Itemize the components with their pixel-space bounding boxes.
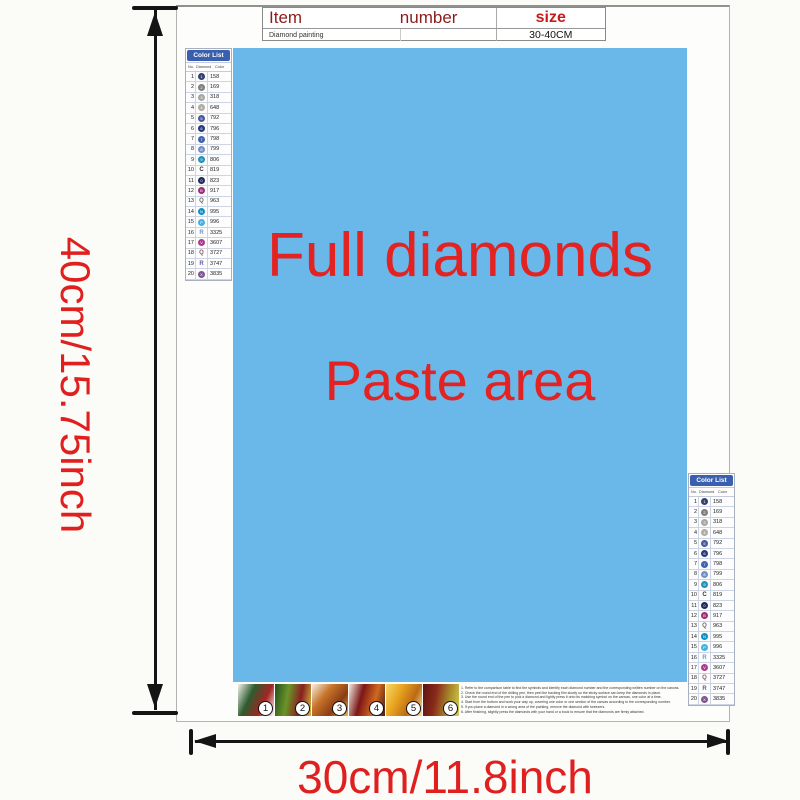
row-number: 13 xyxy=(186,197,196,206)
row-number: 17 xyxy=(186,238,196,247)
col-header-diamond: Diamond xyxy=(699,490,711,494)
row-number: 14 xyxy=(689,632,699,641)
step-number-badge: 5 xyxy=(406,701,421,716)
color-list-row: 10C819 xyxy=(689,591,734,601)
diamond-symbol: R xyxy=(699,653,711,662)
color-code: 819 xyxy=(711,591,734,600)
col-header-diamond: Diamond xyxy=(196,65,208,69)
color-list-row: 17V3607 xyxy=(689,663,734,673)
diamond-symbol: N xyxy=(196,207,208,216)
color-code: 158 xyxy=(711,497,734,506)
diamond-dot-icon: B xyxy=(701,612,708,619)
diamond-symbol: C xyxy=(699,591,711,600)
col-header-color: Color xyxy=(711,490,734,494)
color-code: 917 xyxy=(711,611,734,620)
diamond-letter-symbol: Q xyxy=(199,198,204,204)
col-header-no: No. xyxy=(186,65,196,69)
step-image: 1 xyxy=(238,684,274,716)
color-list-rows: 1115822169333184464855792667967779888799… xyxy=(689,497,734,705)
diamond-dot-icon: 0 xyxy=(701,602,708,609)
color-list-row: 11158 xyxy=(186,72,231,82)
diamond-letter-symbol: R xyxy=(199,230,203,236)
diamond-symbol: P xyxy=(699,642,711,651)
diamond-dot-icon: 6 xyxy=(198,125,205,132)
diamond-letter-symbol: Q xyxy=(199,250,204,256)
color-list-row: 77798 xyxy=(689,559,734,569)
color-list-row: 17V3607 xyxy=(186,238,231,248)
color-list-row: 12B917 xyxy=(186,186,231,196)
diamond-dot-icon: 5 xyxy=(701,540,708,547)
diamond-dot-icon: 1 xyxy=(198,73,205,80)
diamond-symbol: C xyxy=(196,166,208,175)
diamond-symbol: B xyxy=(699,611,711,620)
horizontal-arrow-right-cap xyxy=(726,729,730,755)
diamond-dot-icon: 4 xyxy=(198,104,205,111)
diamond-symbol: X xyxy=(699,694,711,703)
diamond-dot-icon: 4 xyxy=(701,529,708,536)
diamond-dot-icon: 7 xyxy=(701,561,708,568)
row-number: 14 xyxy=(186,207,196,216)
diamond-letter-symbol: Q xyxy=(702,675,707,681)
row-number: 20 xyxy=(186,269,196,278)
row-number: 16 xyxy=(186,228,196,237)
diamond-letter-symbol: C xyxy=(702,592,706,598)
row-number: 2 xyxy=(186,82,196,91)
color-code: 318 xyxy=(208,93,231,102)
color-code: 798 xyxy=(711,559,734,568)
color-code: 3727 xyxy=(711,674,734,683)
color-list-row: 14N995 xyxy=(186,207,231,217)
diamond-dot-icon: 1 xyxy=(701,498,708,505)
color-list-row: 14N995 xyxy=(689,632,734,642)
color-code: 648 xyxy=(208,103,231,112)
color-list-left: Color List No. Diamond Color 11158221693… xyxy=(185,48,232,281)
color-list-column-headers: No. Diamond Color xyxy=(689,487,734,497)
item-value: Diamond painting xyxy=(263,32,400,39)
diamond-letter-symbol: R xyxy=(199,261,203,267)
color-list-row: 16R3325 xyxy=(689,653,734,663)
number-value xyxy=(400,29,496,41)
diamond-dot-icon: X xyxy=(198,271,205,278)
diamond-letter-symbol: Q xyxy=(702,623,707,629)
color-list-row: 22169 xyxy=(186,82,231,92)
color-code: 3747 xyxy=(208,259,231,268)
color-code: 796 xyxy=(711,549,734,558)
color-list-row: 15P996 xyxy=(689,642,734,652)
instruction-line: 6. After finishing, slightly press the d… xyxy=(461,710,698,715)
item-size-table: Item number size Diamond painting 30-40C… xyxy=(262,7,606,41)
color-code: 963 xyxy=(208,197,231,206)
diamond-dot-icon: 6 xyxy=(701,550,708,557)
diamond-symbol: Q xyxy=(196,249,208,258)
height-dimension-label: 40cm/15.75inch xyxy=(51,237,99,534)
color-code: 3325 xyxy=(711,653,734,662)
diamond-symbol: 3 xyxy=(196,93,208,102)
diamond-dot-icon: 8 xyxy=(198,146,205,153)
row-number: 8 xyxy=(186,145,196,154)
item-table-header-row: Item number size xyxy=(263,8,605,29)
row-number: 10 xyxy=(689,591,699,600)
color-list-row: 88799 xyxy=(186,145,231,155)
row-number: 6 xyxy=(689,549,699,558)
color-code: 3747 xyxy=(711,684,734,693)
diamond-dot-icon: 3 xyxy=(701,519,708,526)
diamond-symbol: 5 xyxy=(196,114,208,123)
diamond-symbol: 8 xyxy=(196,145,208,154)
color-list-row: 110823 xyxy=(689,601,734,611)
color-list-row: 20X3835 xyxy=(186,269,231,279)
color-code: 917 xyxy=(208,186,231,195)
product-image: Item number size Diamond painting 30-40C… xyxy=(0,0,800,800)
diamond-symbol: 4 xyxy=(196,103,208,112)
size-value: 30-40CM xyxy=(496,29,605,41)
row-number: 15 xyxy=(186,217,196,226)
item-table-value-row: Diamond painting 30-40CM xyxy=(263,29,605,41)
diamond-symbol: 0 xyxy=(196,176,208,185)
color-code: 3607 xyxy=(711,663,734,672)
color-list-row: 110823 xyxy=(186,176,231,186)
diamond-symbol: 1 xyxy=(699,497,711,506)
row-number: 13 xyxy=(689,622,699,631)
row-number: 10 xyxy=(186,166,196,175)
step-number-badge: 4 xyxy=(369,701,384,716)
diamond-symbol: 2 xyxy=(699,507,711,516)
color-list-row: 13Q963 xyxy=(186,197,231,207)
diamond-dot-icon: 9 xyxy=(701,581,708,588)
diamond-symbol: X xyxy=(196,269,208,278)
diamond-symbol: R xyxy=(196,259,208,268)
row-number: 17 xyxy=(689,663,699,672)
color-list-row: 77798 xyxy=(186,134,231,144)
step-number-badge: 3 xyxy=(332,701,347,716)
color-code: 318 xyxy=(711,518,734,527)
diamond-dot-icon: 9 xyxy=(198,156,205,163)
vertical-arrow-line xyxy=(154,10,157,710)
color-list-row: 33318 xyxy=(689,518,734,528)
step-image: 5 xyxy=(386,684,422,716)
row-number: 18 xyxy=(186,249,196,258)
row-number: 4 xyxy=(689,528,699,537)
color-code: 806 xyxy=(208,155,231,164)
diamond-letter-symbol: R xyxy=(702,686,706,692)
diamond-symbol: B xyxy=(196,186,208,195)
color-list-title: Color List xyxy=(187,50,230,61)
color-list-row: 10C819 xyxy=(186,166,231,176)
step-image: 6 xyxy=(423,684,459,716)
diamond-dot-icon: B xyxy=(198,187,205,194)
color-list-row: 55792 xyxy=(186,114,231,124)
diamond-symbol: R xyxy=(196,228,208,237)
diamond-dot-icon: V xyxy=(198,239,205,246)
color-code: 823 xyxy=(711,601,734,610)
color-code: 648 xyxy=(711,528,734,537)
color-code: 799 xyxy=(208,145,231,154)
paste-area-title-line2: Paste area xyxy=(233,348,687,413)
diamond-symbol: 3 xyxy=(699,518,711,527)
diamond-symbol: Q xyxy=(699,622,711,631)
color-list-row: 19R3747 xyxy=(186,259,231,269)
row-number: 7 xyxy=(689,559,699,568)
color-code: 792 xyxy=(208,114,231,123)
item-header: Item xyxy=(263,8,400,28)
diamond-symbol: 7 xyxy=(699,559,711,568)
color-list-row: 99806 xyxy=(689,580,734,590)
row-number: 12 xyxy=(186,186,196,195)
horizontal-arrow-line xyxy=(195,740,728,743)
row-number: 15 xyxy=(689,642,699,651)
diamond-symbol: P xyxy=(196,217,208,226)
color-list-row: 13Q963 xyxy=(689,622,734,632)
color-code: 823 xyxy=(208,176,231,185)
horizontal-arrow-left-cap xyxy=(189,729,193,755)
diamond-letter-symbol: C xyxy=(199,167,203,173)
step-image: 3 xyxy=(312,684,348,716)
diamond-dot-icon: 5 xyxy=(198,115,205,122)
diamond-dot-icon: 2 xyxy=(198,84,205,91)
color-code: 819 xyxy=(208,166,231,175)
diamond-dot-icon: P xyxy=(701,644,708,651)
diamond-dot-icon: 8 xyxy=(701,571,708,578)
diamond-symbol: 6 xyxy=(699,549,711,558)
paste-area-title-line1: Full diamonds xyxy=(233,220,687,291)
diamond-symbol: Q xyxy=(699,674,711,683)
color-code: 3727 xyxy=(208,249,231,258)
row-number: 1 xyxy=(689,497,699,506)
step-image: 4 xyxy=(349,684,385,716)
color-list-right: Color List No. Diamond Color 11158221693… xyxy=(688,473,735,706)
color-list-row: 33318 xyxy=(186,93,231,103)
color-list-row: 44648 xyxy=(186,103,231,113)
color-list-row: 66796 xyxy=(689,549,734,559)
diamond-dot-icon: 0 xyxy=(198,177,205,184)
number-header: number xyxy=(400,8,496,28)
diamond-symbol: Q xyxy=(196,197,208,206)
row-number: 3 xyxy=(186,93,196,102)
arrow-down-icon xyxy=(147,684,163,708)
diamond-symbol: 5 xyxy=(699,539,711,548)
color-code: 3607 xyxy=(208,238,231,247)
color-code: 169 xyxy=(711,507,734,516)
diamond-symbol: V xyxy=(196,238,208,247)
diamond-symbol: 6 xyxy=(196,124,208,133)
row-number: 8 xyxy=(689,570,699,579)
color-list-row: 22169 xyxy=(689,507,734,517)
diamond-dot-icon: 2 xyxy=(701,509,708,516)
diamond-dot-icon: V xyxy=(701,664,708,671)
diamond-symbol: 9 xyxy=(196,155,208,164)
color-list-row: 16R3325 xyxy=(186,228,231,238)
color-code: 995 xyxy=(711,632,734,641)
color-list-row: 12B917 xyxy=(689,611,734,621)
instruction-line: 1. Refer to the comparison table to find… xyxy=(461,686,698,691)
row-number: 7 xyxy=(186,134,196,143)
step-number-badge: 6 xyxy=(443,701,458,716)
row-number: 12 xyxy=(689,611,699,620)
diamond-dot-icon: N xyxy=(701,633,708,640)
step-image: 2 xyxy=(275,684,311,716)
row-number: 5 xyxy=(186,114,196,123)
diamond-symbol: N xyxy=(699,632,711,641)
color-list-row: 66796 xyxy=(186,124,231,134)
row-number: 1 xyxy=(186,72,196,81)
color-list-row: 18Q3727 xyxy=(186,249,231,259)
row-number: 9 xyxy=(689,580,699,589)
row-number: 16 xyxy=(689,653,699,662)
color-code: 3835 xyxy=(208,269,231,278)
diamond-symbol: V xyxy=(699,663,711,672)
color-code: 796 xyxy=(208,124,231,133)
row-number: 11 xyxy=(186,176,196,185)
diamond-dot-icon: 7 xyxy=(198,136,205,143)
row-number: 6 xyxy=(186,124,196,133)
diamond-symbol: 2 xyxy=(196,82,208,91)
width-dimension-label: 30cm/11.8inch xyxy=(297,750,593,800)
row-number: 3 xyxy=(689,518,699,527)
diamond-symbol: 0 xyxy=(699,601,711,610)
row-number: 9 xyxy=(186,155,196,164)
color-code: 3835 xyxy=(711,694,734,703)
col-header-color: Color xyxy=(208,65,231,69)
color-code: 169 xyxy=(208,82,231,91)
row-number: 18 xyxy=(689,674,699,683)
vertical-arrow-bottom-cap xyxy=(132,711,178,715)
row-number: 19 xyxy=(186,259,196,268)
step-number-badge: 1 xyxy=(258,701,273,716)
row-number: 5 xyxy=(689,539,699,548)
col-header-no: No. xyxy=(689,490,699,494)
instruction-text: 1. Refer to the comparison table to find… xyxy=(461,686,698,714)
color-code: 995 xyxy=(208,207,231,216)
color-code: 996 xyxy=(711,642,734,651)
row-number: 11 xyxy=(689,601,699,610)
step-number-badge: 2 xyxy=(295,701,310,716)
diamond-dot-icon: X xyxy=(701,696,708,703)
diamond-dot-icon: 3 xyxy=(198,94,205,101)
diamond-symbol: 4 xyxy=(699,528,711,537)
row-number: 4 xyxy=(186,103,196,112)
color-list-row: 18Q3727 xyxy=(689,674,734,684)
color-list-row: 11158 xyxy=(689,497,734,507)
step-thumbnails: 123456 xyxy=(238,684,459,716)
color-list-row: 15P996 xyxy=(186,217,231,227)
row-number: 2 xyxy=(689,507,699,516)
color-list-row: 88799 xyxy=(689,570,734,580)
color-code: 792 xyxy=(711,539,734,548)
color-list-title: Color List xyxy=(690,475,733,486)
color-code: 996 xyxy=(208,217,231,226)
diamond-symbol: 1 xyxy=(196,72,208,81)
diamond-symbol: 7 xyxy=(196,134,208,143)
color-code: 963 xyxy=(711,622,734,631)
diamond-symbol: R xyxy=(699,684,711,693)
color-code: 3325 xyxy=(208,228,231,237)
color-list-column-headers: No. Diamond Color xyxy=(186,62,231,72)
color-list-row: 44648 xyxy=(689,528,734,538)
size-header: size xyxy=(496,8,605,28)
color-code: 158 xyxy=(208,72,231,81)
color-list-rows: 1115822169333184464855792667967779888799… xyxy=(186,72,231,280)
color-code: 799 xyxy=(711,570,734,579)
diamond-symbol: 8 xyxy=(699,570,711,579)
color-code: 806 xyxy=(711,580,734,589)
diamond-symbol: 9 xyxy=(699,580,711,589)
diamond-dot-icon: P xyxy=(198,219,205,226)
color-code: 798 xyxy=(208,134,231,143)
color-list-row: 55792 xyxy=(689,539,734,549)
diamond-letter-symbol: R xyxy=(702,655,706,661)
color-list-row: 99806 xyxy=(186,155,231,165)
diamond-dot-icon: N xyxy=(198,208,205,215)
